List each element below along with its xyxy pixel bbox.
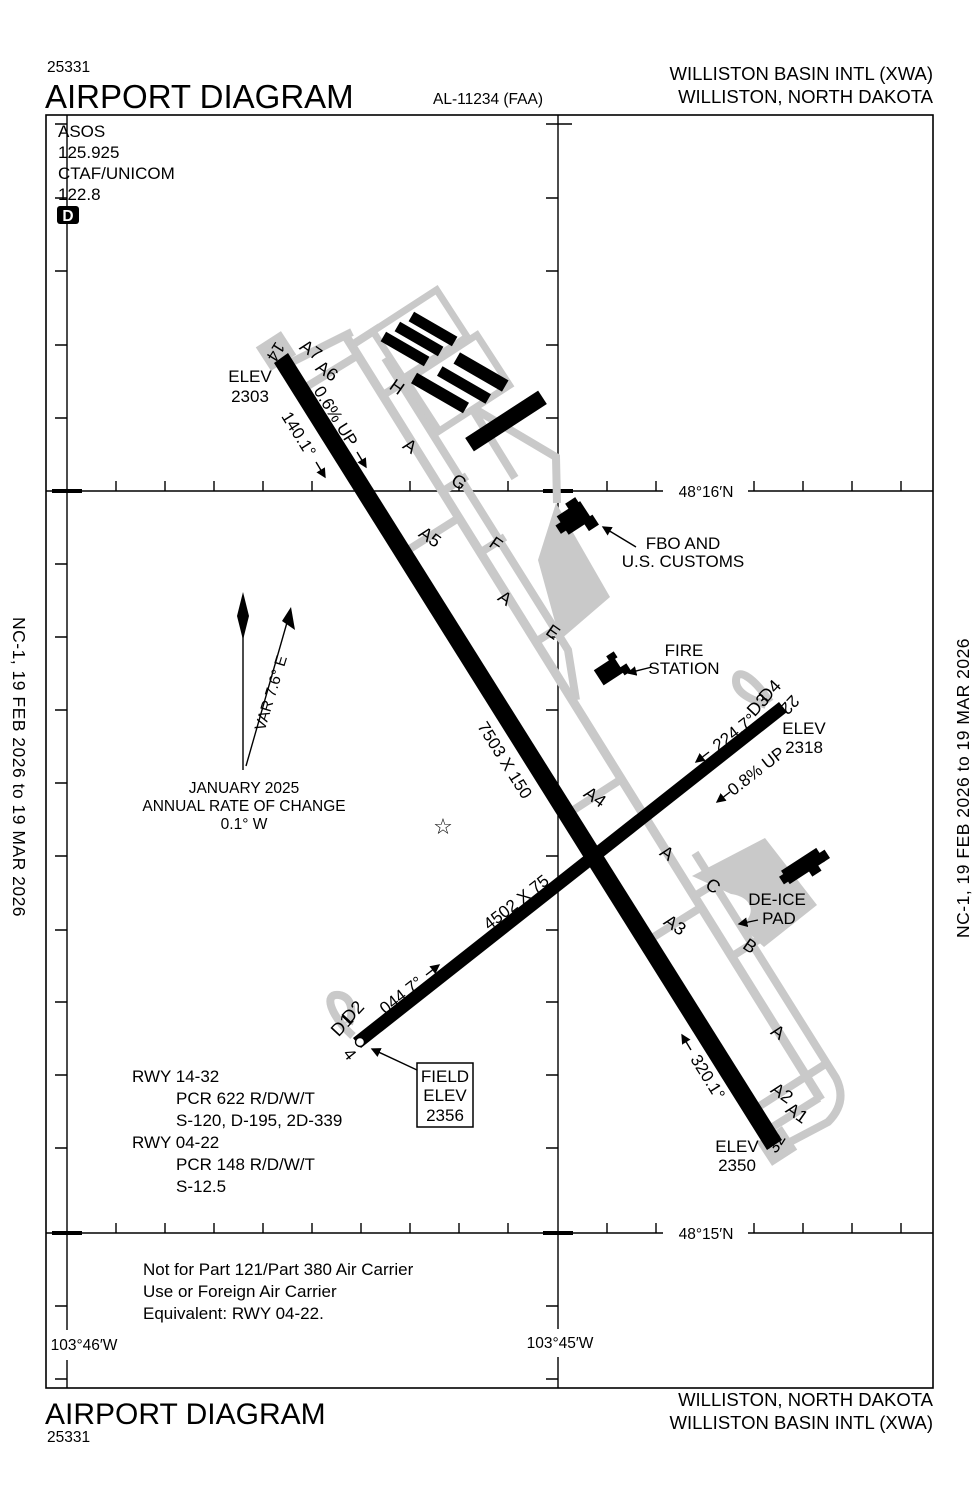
longitude-west-ticks [55, 124, 67, 1379]
header-chart-number: 25331 [47, 59, 90, 76]
runway32-elev-value: 2350 [718, 1156, 756, 1175]
latitude-south-ticks [116, 1223, 901, 1233]
header-city: WILLISTON, NORTH DAKOTA [678, 86, 934, 107]
field-elev-value: 2356 [426, 1106, 464, 1125]
asos-frequency: 125.925 [58, 143, 119, 162]
comm-frequencies: ASOS 125.925 CTAF/UNICOM 122.8 D [57, 122, 175, 225]
latitude-north-ticks [116, 481, 901, 491]
note-line3: Equivalent: RWY 04-22. [143, 1304, 324, 1323]
deice-label-line1: DE-ICE [748, 890, 806, 909]
magnetic-rate-value: 0.1° W [221, 816, 268, 833]
note-line2: Use or Foreign Air Carrier [143, 1282, 337, 1301]
field-elev-line2: ELEV [423, 1086, 467, 1105]
lon-west-label: 103°46′W [51, 1337, 118, 1354]
runway32-heading-arrow [682, 1035, 691, 1050]
runway22-elev-value: 2318 [785, 738, 823, 757]
lat-south-label: 48°15′N [679, 1226, 734, 1243]
beacon-icon: ☆ [433, 814, 453, 839]
footer-chart-number: 25331 [47, 1429, 90, 1446]
runway14-elev-value: 2303 [231, 387, 269, 406]
runway0422-gradient-arrow [717, 792, 730, 802]
variation-arrow-head [282, 607, 295, 630]
runway-data-block: RWY 14-32 PCR 622 R/D/W/T S-120, D-195, … [132, 1067, 342, 1196]
longitude-east-ticks [546, 124, 572, 1379]
magnetic-date: JANUARY 2025 [189, 780, 300, 797]
field-elevation-point [356, 1038, 365, 1047]
edition-note-right: NC-1, 19 FEB 2026 to 19 MAR 2026 [953, 638, 973, 938]
airport-diagram-page: { "colors": {"ink": "#000000", "pavement… [0, 0, 978, 1500]
field-elev-line1: FIELD [421, 1067, 469, 1086]
runway22-elev-label: ELEV [782, 719, 826, 738]
lat-north-label: 48°16′N [679, 484, 734, 501]
deice-label-line2: PAD [762, 909, 796, 928]
fbo-arrow [603, 527, 636, 547]
footer-title: AIRPORT DIAGRAM [45, 1398, 326, 1431]
field-elev-arrow [372, 1049, 417, 1070]
runway14-heading-arrow [316, 462, 325, 477]
rwy1432-pcr: PCR 622 R/D/W/T [176, 1089, 315, 1108]
ctaf-unicom-label: CTAF/UNICOM [58, 164, 175, 183]
fire-station-label-line2: STATION [648, 659, 719, 678]
edition-note-left: NC-1, 19 FEB 2026 to 19 MAR 2026 [9, 617, 29, 917]
footer-city: WILLISTON, NORTH DAKOTA [678, 1389, 934, 1410]
north-arrow-head [237, 592, 249, 640]
lon-east-label: 103°45′W [527, 1335, 594, 1352]
rwy1432-title: RWY 14-32 [132, 1067, 219, 1086]
runway32-elev-label: ELEV [715, 1137, 759, 1156]
footer-airport-name: WILLISTON BASIN INTL (XWA) [670, 1412, 934, 1433]
fire-station-building [591, 649, 631, 688]
runway14-elev-label: ELEV [228, 367, 272, 386]
header-airport-name: WILLISTON BASIN INTL (XWA) [670, 63, 934, 84]
datalink-symbol: D [62, 208, 73, 225]
variation-label: VAR 7.6° E [252, 654, 291, 733]
procedure-id: AL-11234 (FAA) [433, 91, 543, 108]
runway4-number: 4 [339, 1045, 360, 1064]
fbo-label-line2: U.S. CUSTOMS [622, 552, 744, 571]
fbo-label-line1: FBO AND [646, 534, 721, 553]
note-line1: Not for Part 121/Part 380 Air Carrier [143, 1260, 414, 1279]
airport-diagram-canvas: 25331 AIRPORT DIAGRAM AL-11234 (FAA) WIL… [0, 0, 978, 1500]
rwy0422-strength: S-12.5 [176, 1177, 226, 1196]
fire-station-label-line1: FIRE [665, 641, 704, 660]
asos-label: ASOS [58, 122, 105, 141]
ctaf-unicom-frequency: 122.8 [58, 185, 101, 204]
header-title: AIRPORT DIAGRAM [45, 78, 354, 115]
rwy1432-strength: S-120, D-195, 2D-339 [176, 1111, 342, 1130]
magnetic-rate-label: ANNUAL RATE OF CHANGE [142, 798, 345, 815]
air-carrier-note: Not for Part 121/Part 380 Air Carrier Us… [143, 1260, 414, 1323]
runway1432-gradient-arrow [357, 452, 366, 467]
rwy0422-title: RWY 04-22 [132, 1133, 219, 1152]
rwy0422-pcr: PCR 148 R/D/W/T [176, 1155, 315, 1174]
